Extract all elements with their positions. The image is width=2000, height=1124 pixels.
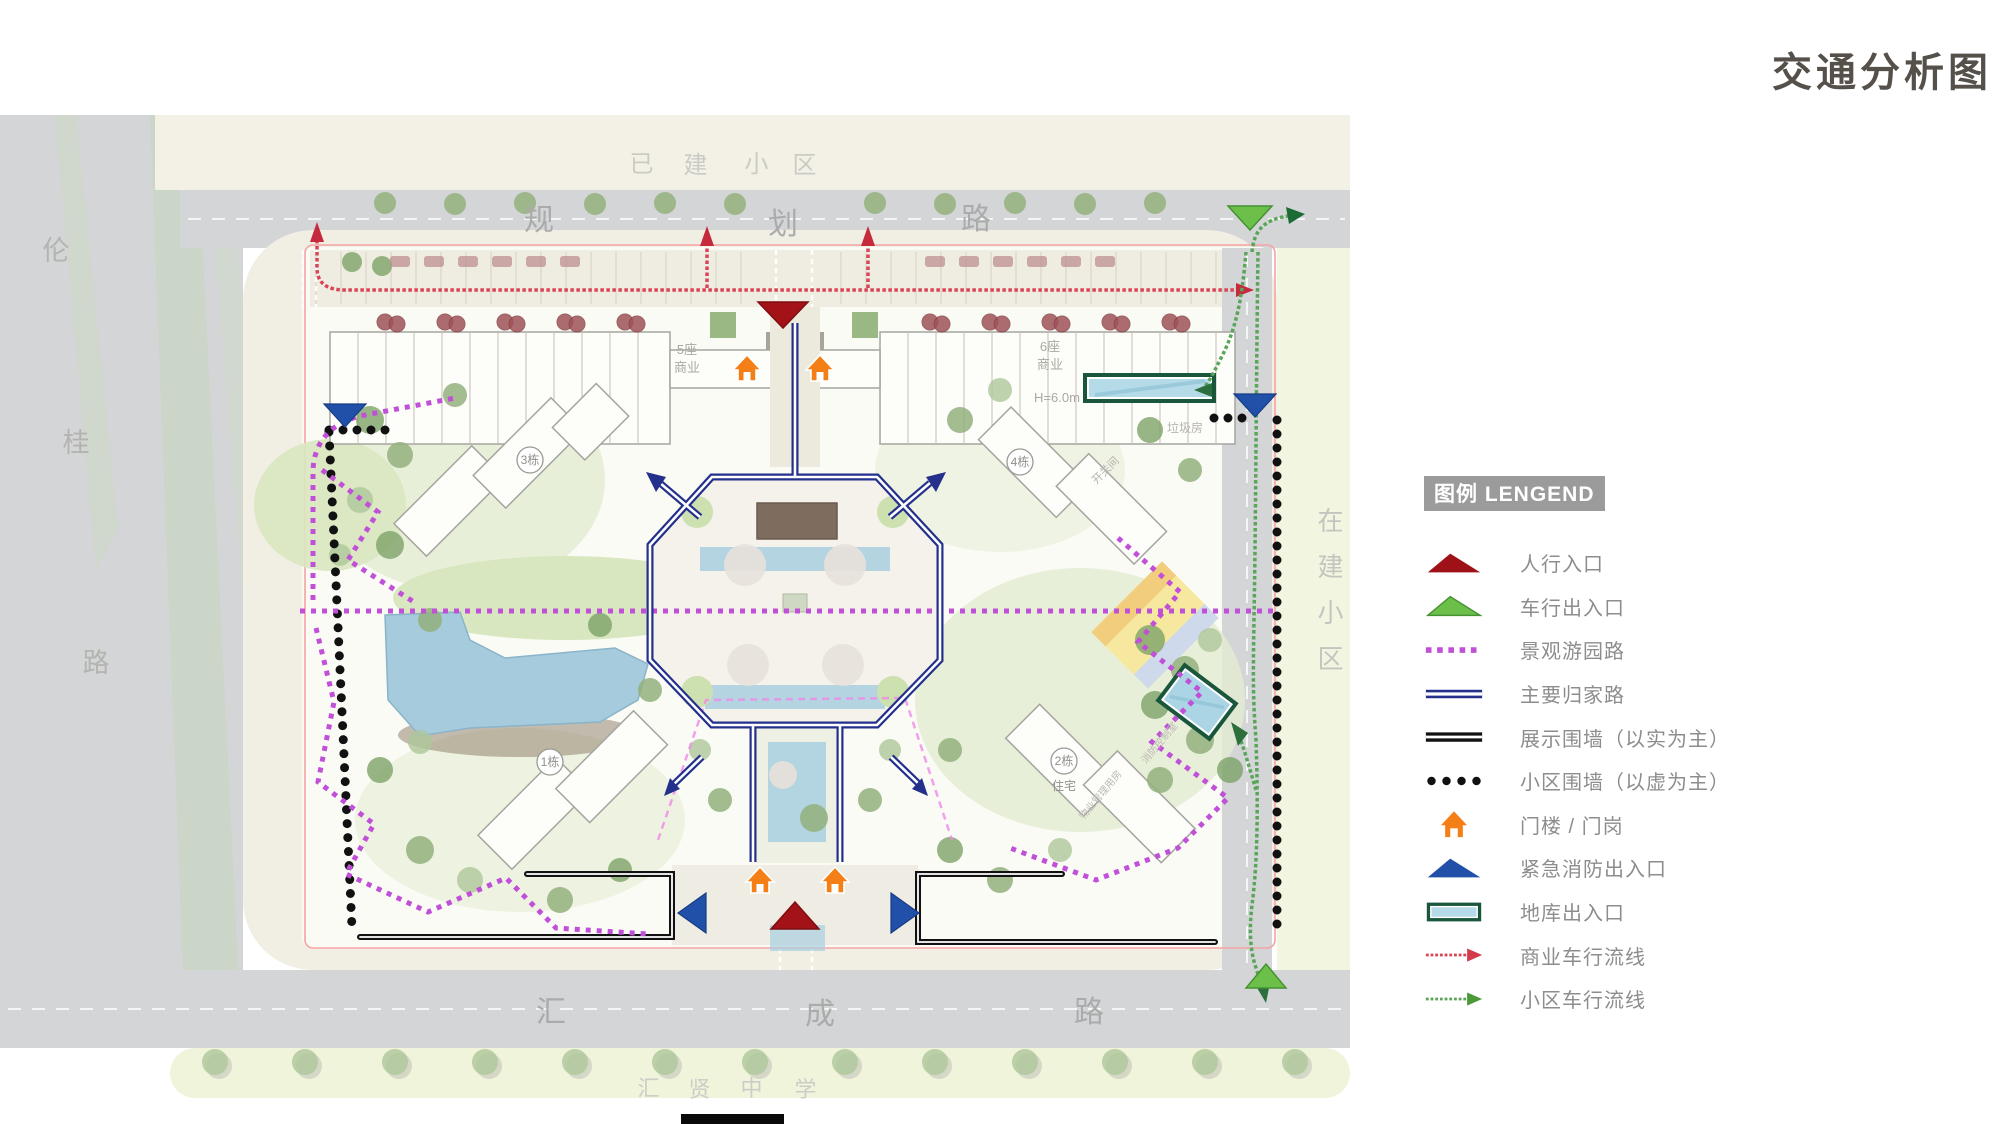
svg-text:6座: 6座	[1040, 339, 1060, 354]
svg-text:建: 建	[1317, 552, 1344, 582]
legend-item-community-wall: 小区围墙（以虚为主）	[1424, 759, 1764, 803]
main-home-route-icon	[1424, 677, 1484, 711]
svg-text:学: 学	[794, 1077, 817, 1102]
legend-item-landscape-path: 景观游园路	[1424, 628, 1764, 672]
community-wall-icon	[1424, 764, 1484, 798]
legend: 图例 LENGEND 人行入口 车行出入口 景观游园路 主要归家路	[1424, 476, 1764, 1021]
svg-text:伦: 伦	[43, 236, 72, 266]
legend-item-emergency-fire-exit: 紧急消防出入口	[1424, 846, 1764, 890]
site-plan-map: 规 划 路 汇 成 路 伦 桂 路 已 建 小 区 在 建 小 区 汇 贤 中 …	[0, 0, 1350, 1124]
svg-text:商业: 商业	[1037, 357, 1063, 372]
svg-text:已: 已	[630, 151, 655, 178]
svg-text:在: 在	[1317, 506, 1344, 536]
legend-item-garage-entrance: 地库出入口	[1424, 890, 1764, 934]
svg-text:5座: 5座	[677, 342, 697, 357]
svg-text:成: 成	[805, 998, 837, 1031]
svg-text:H=6.0m: H=6.0m	[1034, 390, 1080, 405]
svg-text:住宅: 住宅	[1052, 778, 1076, 793]
svg-text:小: 小	[745, 151, 770, 178]
svg-text:桂: 桂	[63, 428, 92, 458]
legend-item-pedestrian-entrance: 人行入口	[1424, 541, 1764, 585]
legend-item-community-vehicle-flow: 小区车行流线	[1424, 977, 1764, 1021]
svg-text:垃圾房: 垃圾房	[1167, 420, 1203, 435]
svg-text:3栋: 3栋	[521, 452, 540, 467]
vehicle-entrance-icon	[1424, 589, 1484, 623]
svg-text:商业: 商业	[674, 360, 700, 375]
svg-text:4栋: 4栋	[1011, 454, 1030, 469]
svg-text:汇: 汇	[637, 1076, 660, 1101]
commercial-vehicle-flow-icon	[1424, 938, 1484, 972]
legend-item-vehicle-entrance: 车行出入口	[1424, 585, 1764, 629]
svg-text:区: 区	[1317, 644, 1344, 674]
legend-item-commercial-vehicle-flow: 商业车行流线	[1424, 933, 1764, 977]
garage-entrance-top	[1083, 373, 1216, 403]
svg-text:路: 路	[1074, 996, 1106, 1029]
svg-text:路: 路	[961, 203, 993, 236]
scale-bar-fragment	[681, 1114, 784, 1124]
svg-text:汇: 汇	[536, 996, 568, 1029]
svg-text:2栋: 2栋	[1055, 753, 1074, 768]
svg-text:中: 中	[740, 1076, 763, 1101]
community-vehicle-flow-icon	[1424, 982, 1484, 1016]
svg-text:建: 建	[684, 152, 709, 179]
svg-text:区: 区	[793, 152, 818, 179]
pedestrian-entrance-icon	[1424, 546, 1484, 580]
svg-text:小: 小	[1317, 598, 1344, 628]
legend-item-display-wall: 展示围墙（以实为主）	[1424, 715, 1764, 759]
svg-text:1栋: 1栋	[541, 754, 560, 769]
legend-item-gate-house: 门楼 / 门岗	[1424, 803, 1764, 847]
legend-item-main-home-route: 主要归家路	[1424, 672, 1764, 716]
display-wall-icon	[1424, 720, 1484, 754]
svg-text:路: 路	[83, 648, 112, 678]
legend-header: 图例 LENGEND	[1424, 476, 1605, 511]
gate-house-icon	[1424, 807, 1484, 841]
emergency-fire-exit-icon	[1424, 851, 1484, 885]
page: 规 划 路 汇 成 路 伦 桂 路 已 建 小 区 在 建 小 区 汇 贤 中 …	[0, 0, 2000, 1124]
landscape-path-icon	[1424, 633, 1484, 667]
svg-text:划: 划	[768, 208, 800, 241]
svg-text:规: 规	[524, 204, 556, 237]
svg-text:贤: 贤	[688, 1077, 711, 1102]
garage-entrance-icon	[1424, 895, 1484, 929]
page-title: 交通分析图	[1772, 40, 1992, 98]
